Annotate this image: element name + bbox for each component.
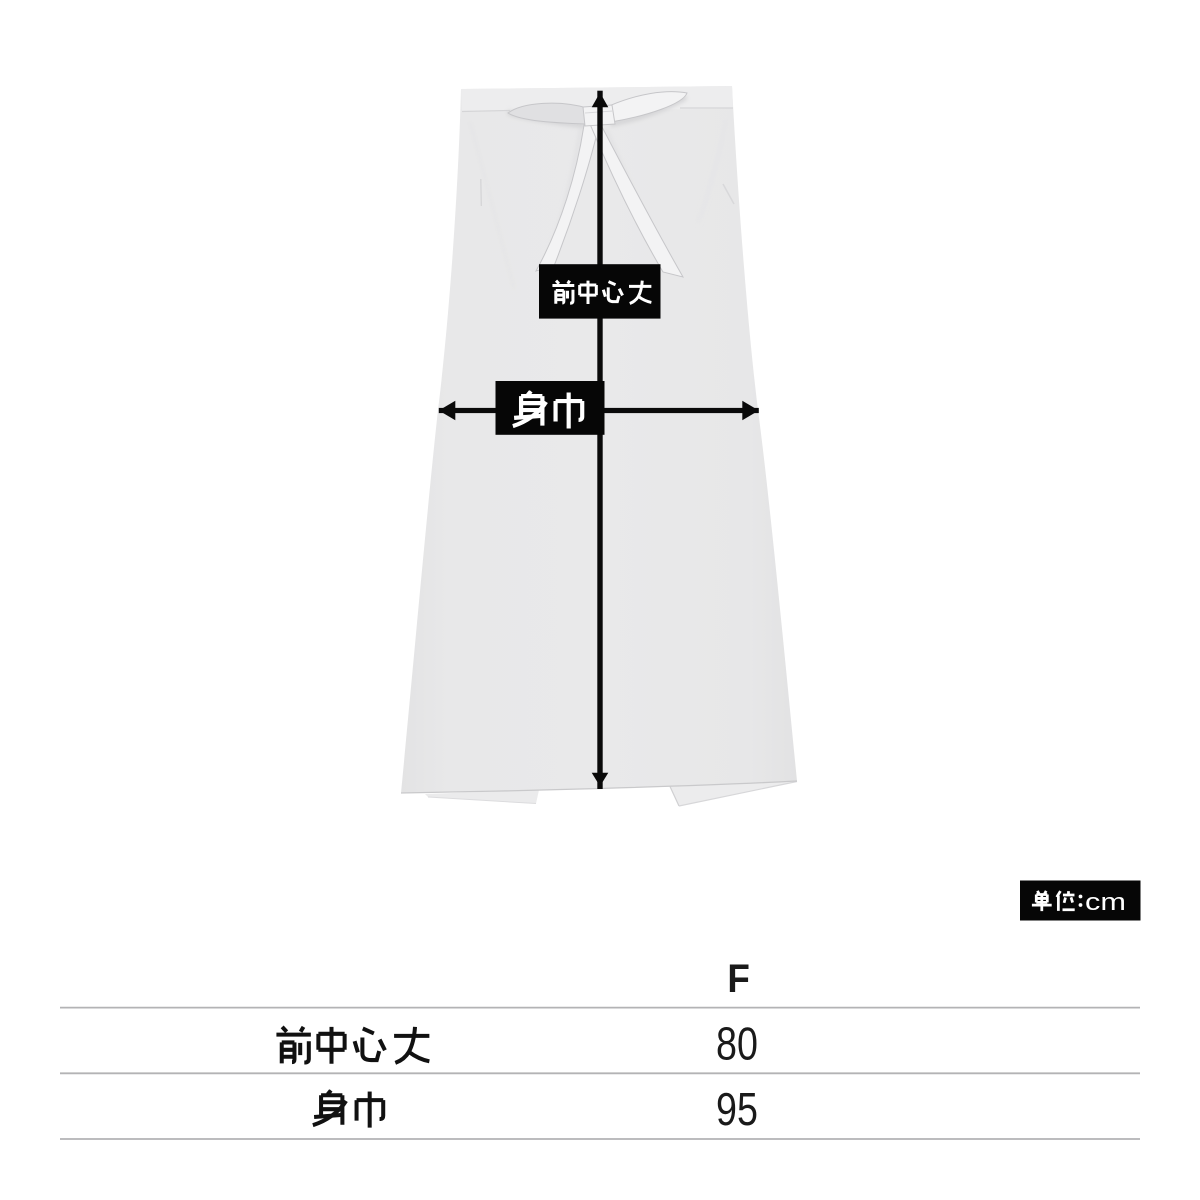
svg-text:F: F xyxy=(727,957,749,1002)
svg-text:95: 95 xyxy=(716,1083,758,1135)
svg-text:80: 80 xyxy=(716,1018,758,1070)
svg-text:cm: cm xyxy=(1085,888,1126,915)
